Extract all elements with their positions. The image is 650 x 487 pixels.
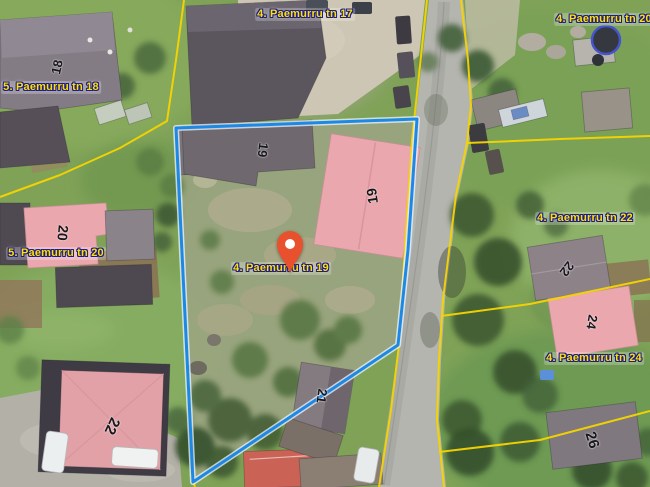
address-label-paemurru-tn-20-left: 5. Paemurru tn 20 — [6, 247, 106, 260]
map-canvas[interactable]: 18 19 19 20 21 22 22 24 26 4. Paemurru t… — [0, 0, 650, 487]
building-number-18: 18 — [48, 58, 66, 75]
address-label-paemurru-tn-22: 4. Paemurru tn 22 — [535, 212, 635, 225]
building-number-21: 21 — [314, 388, 331, 404]
building-number-20: 20 — [54, 225, 71, 242]
aerial-imagery — [0, 0, 650, 487]
address-label-paemurru-tn-17: 4. Paemurru tn 17 — [255, 8, 355, 21]
address-label-paemurru-tn-18: 5. Paemurru tn 18 — [1, 81, 101, 94]
address-label-paemurru-tn-20-right: 4. Paemurru tn 20 — [554, 13, 650, 26]
pond-circle — [592, 26, 620, 54]
building-number-19-grey: 19 — [255, 142, 272, 158]
building-number-24: 24 — [583, 314, 600, 331]
building-20-outbuilding — [55, 264, 152, 307]
address-label-paemurru-tn-24: 4. Paemurru tn 24 — [544, 352, 644, 365]
shed-right — [581, 88, 632, 132]
building-20-grey-wing — [105, 209, 155, 261]
location-pin-icon[interactable] — [275, 231, 305, 273]
building-number-19-pink: 19 — [363, 187, 381, 205]
building-18-annex-roof — [0, 106, 70, 168]
